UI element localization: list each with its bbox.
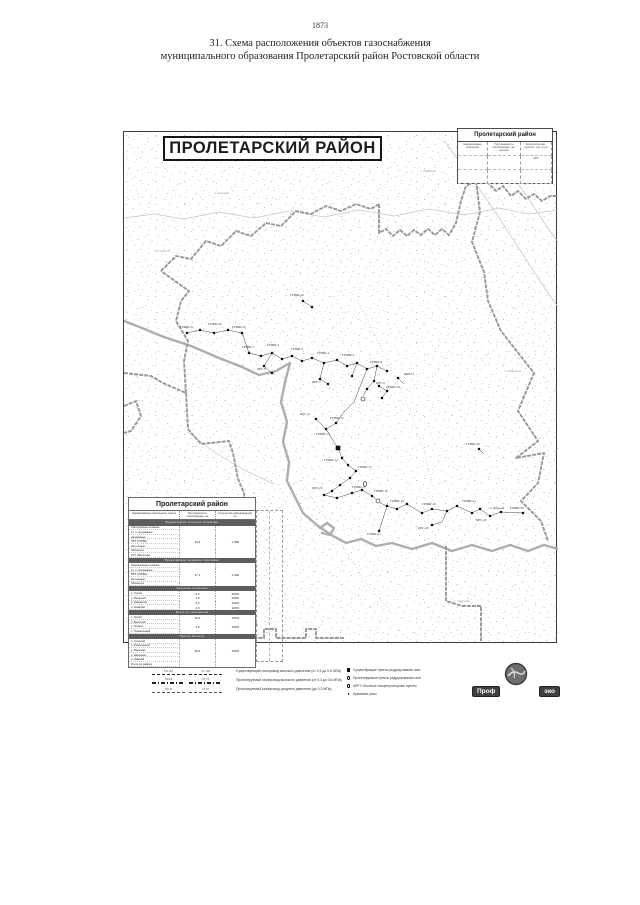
facility-label: ГРПШ-10 bbox=[385, 385, 400, 389]
logo-text-right: эко bbox=[539, 686, 560, 697]
gas-facility-marker bbox=[366, 388, 368, 390]
gas-facility-marker bbox=[361, 397, 365, 401]
document-title-line1: 31. Схема расположения объектов газоснаб… bbox=[0, 37, 640, 50]
gas-facility-marker bbox=[323, 494, 325, 496]
pipeline-legend-text: Проектируемый газопровод высокого давлен… bbox=[236, 678, 342, 682]
pipeline-line-sample: СТ 57 bbox=[189, 688, 222, 693]
gas-facility-marker bbox=[373, 380, 375, 382]
info-box-cell: Наименование поселения bbox=[458, 142, 488, 156]
settlement-label: х. Нижний bbox=[454, 599, 470, 603]
gas-facility-marker bbox=[311, 357, 313, 359]
info-box-cell: - bbox=[521, 170, 552, 184]
settlement-table-header: Наименование населенного пунктаПротяженн… bbox=[129, 511, 255, 520]
pipeline-line-sample: ПЭ 110 bbox=[152, 670, 185, 675]
gas-facility-marker bbox=[479, 508, 481, 510]
gas-facility-marker bbox=[386, 505, 388, 507]
table-row: Абоненты bbox=[129, 582, 255, 587]
logo-text-left: Проф bbox=[472, 686, 500, 697]
facility-label: ГРПШ-14 bbox=[323, 458, 338, 462]
gas-facility-marker bbox=[396, 508, 398, 510]
facility-label: ПРГ-7 bbox=[311, 380, 321, 384]
facility-label: ШРП-2 bbox=[403, 372, 415, 376]
pipe-diameter-tag: ПЭ 110 bbox=[152, 670, 185, 673]
gas-facility-marker bbox=[361, 489, 363, 491]
district-info-box: Пролетарский район Наименование поселени… bbox=[457, 128, 553, 184]
gas-facility-marker bbox=[456, 505, 458, 507]
facility-label: ГРПШ-12 bbox=[329, 416, 344, 420]
table-row: Итого по району bbox=[129, 662, 255, 667]
facility-label: ГРПШ-29 bbox=[465, 442, 480, 446]
page-number: 1873 bbox=[0, 21, 640, 30]
gas-facility-marker bbox=[376, 499, 380, 503]
info-box-cell: 20% bbox=[521, 156, 552, 170]
row-value bbox=[180, 553, 215, 558]
pipe-diameter-tag: СТ 108 bbox=[189, 670, 222, 673]
facility-label: ГРПШ-19 bbox=[389, 499, 404, 503]
pipeline-line-style bbox=[189, 674, 222, 675]
row-label: Итого по району bbox=[129, 662, 180, 667]
settlement-label: х. Степной bbox=[154, 249, 170, 253]
settlement-table-body: Будённовское сельское поселениеГазопрово… bbox=[129, 520, 255, 666]
gas-facility-marker bbox=[406, 503, 408, 505]
gas-facility-marker bbox=[311, 306, 313, 308]
facility-label: ПРГ-9 bbox=[375, 381, 385, 385]
gas-facility-marker bbox=[446, 510, 448, 512]
info-box-cell bbox=[488, 156, 521, 170]
gas-facility-marker bbox=[378, 385, 380, 387]
row-label: х. Привольный bbox=[129, 629, 180, 634]
info-box-cell bbox=[458, 156, 488, 170]
pipe-diameter-tag: ПЭ 32 bbox=[152, 688, 185, 691]
row-value bbox=[216, 553, 255, 558]
symbol-legend-row: ШРП / блочные газорегуляторные пункты bbox=[344, 682, 464, 690]
gas-facility-marker bbox=[248, 352, 250, 354]
dt-symbol-icon bbox=[344, 693, 353, 695]
symbol-legend-text: Крановые узлы bbox=[353, 692, 377, 696]
settlement-table-col-header: Протяженность газопроводов, км bbox=[180, 511, 215, 519]
logo-emblem-icon bbox=[504, 662, 528, 686]
info-box-title: Пролетарский район bbox=[458, 129, 552, 142]
row-value bbox=[180, 629, 215, 634]
table-row: х. Ковалёв4,6100% bbox=[129, 605, 255, 610]
gas-facility-marker bbox=[478, 448, 480, 450]
gas-facility-marker bbox=[371, 495, 373, 497]
symbol-legend-row: Крановые узлы bbox=[344, 690, 464, 698]
gas-facility-marker bbox=[522, 512, 524, 514]
gas-facility-marker bbox=[213, 332, 215, 334]
facility-label: ГРПШ-8 bbox=[369, 360, 382, 364]
row-value: 100% bbox=[216, 605, 255, 610]
pipeline-line-sample: ПЭ 32 bbox=[152, 688, 185, 693]
settlement-label: п. Ковалёв bbox=[214, 191, 230, 195]
gas-facility-marker bbox=[271, 352, 273, 354]
pipeline-line-sample: СТ 108 bbox=[189, 670, 222, 675]
facility-label: ГРПШ-17 bbox=[351, 485, 366, 489]
gas-facility-marker bbox=[351, 492, 353, 494]
info-box-cell: Количество нас. пунктов, тыс. штук bbox=[521, 142, 552, 156]
gas-facility-marker bbox=[336, 359, 338, 361]
info-box-cell bbox=[458, 170, 488, 184]
pipeline-legend-text: Проектируемый газопровод среднего давлен… bbox=[236, 687, 332, 691]
facility-label: ГРПШ-21 bbox=[179, 325, 194, 329]
facility-label: х. Дальний bbox=[489, 505, 505, 510]
facility-label: ГРПШ-2 bbox=[266, 343, 279, 347]
settlement-label: х. Камышев bbox=[504, 369, 522, 373]
company-logo: Проф эко bbox=[472, 662, 560, 704]
facility-label: ГРПШ-22 bbox=[207, 322, 222, 326]
settlement-table-col-header: Наименование населенного пункта bbox=[129, 511, 180, 519]
row-value bbox=[180, 582, 215, 587]
info-box-cell bbox=[488, 170, 521, 184]
gas-facility-marker bbox=[341, 457, 343, 459]
gas-facility-marker bbox=[431, 524, 433, 526]
facility-label: ГРПШ-3 bbox=[290, 347, 303, 351]
pipeline-line-style bbox=[152, 682, 185, 684]
gas-facility-marker bbox=[347, 464, 349, 466]
document-title-line2: муниципального образования Пролетарский … bbox=[0, 50, 640, 63]
gas-facility-marker bbox=[327, 383, 329, 385]
gas-facility-marker bbox=[302, 300, 304, 302]
symbol-legend-text: ШРП / блочные газорегуляторные пункты bbox=[353, 684, 417, 688]
gas-facility-marker bbox=[349, 477, 351, 479]
gas-facility-marker bbox=[241, 332, 243, 334]
gas-facility-marker bbox=[397, 377, 399, 379]
row-label: х. Ковалёв bbox=[129, 605, 180, 610]
settlement-table-title: Пролетарский район bbox=[129, 498, 255, 511]
gas-facility-marker bbox=[323, 362, 325, 364]
gas-facility-marker bbox=[471, 512, 473, 514]
settlement-label: х. Верхний bbox=[420, 169, 436, 173]
gas-facility-marker bbox=[331, 490, 333, 492]
symbol-legend-text: Существующие пункты редуцирования газа bbox=[353, 668, 420, 672]
gas-facility-marker bbox=[186, 332, 188, 334]
facility-label: ГРПШ-15 bbox=[357, 465, 372, 469]
row-value bbox=[216, 629, 255, 634]
info-box-cell: Протяженность газопроводов, пог. метров bbox=[488, 142, 521, 156]
pipeline-line-style bbox=[189, 682, 222, 684]
gas-facility-marker bbox=[336, 497, 338, 499]
symbol-legend-row: Проектируемые пункты редуцирования газа bbox=[344, 674, 464, 682]
info-box-grid: Наименование поселенияПротяженность газо… bbox=[458, 142, 552, 184]
gas-facility-marker bbox=[355, 470, 357, 472]
facility-label: ГРПШ-4 bbox=[316, 351, 329, 355]
gas-facility-marker bbox=[315, 418, 317, 420]
gas-facility-marker bbox=[376, 365, 378, 367]
map-title: ПРОЛЕТАРСКИЙ РАЙОН bbox=[163, 136, 382, 161]
pipeline-line-sample: СТ 76 bbox=[189, 678, 222, 684]
facility-label: ГРПШ-20 bbox=[421, 502, 436, 506]
facility-label: ПРГ-26 bbox=[417, 526, 429, 530]
pipe-diameter-tag: ПЭ 63 bbox=[152, 678, 185, 681]
table-row: х. Привольный bbox=[129, 629, 255, 634]
pipeline-legend-text: Существующий газопровод высокого давлени… bbox=[236, 669, 341, 673]
facility-label: ПРГ-11 bbox=[299, 412, 310, 416]
gas-facility-marker bbox=[356, 362, 358, 364]
gas-facility-marker bbox=[260, 355, 262, 357]
facility-label: ГРПШ-1 bbox=[241, 345, 254, 349]
gas-facility-marker bbox=[500, 511, 502, 513]
pipeline-line-style bbox=[152, 692, 185, 693]
row-label: СУГ (баллоны) bbox=[129, 553, 180, 558]
document-title: 31. Схема расположения объектов газоснаб… bbox=[0, 37, 640, 63]
gas-facility-marker bbox=[291, 355, 293, 357]
gas-facility-marker bbox=[431, 508, 433, 510]
row-value bbox=[216, 662, 255, 667]
gas-facility-marker bbox=[301, 360, 303, 362]
symbol-legend-text: Проектируемые пункты редуцирования газа bbox=[353, 676, 421, 680]
gas-facility-marker bbox=[271, 372, 273, 374]
facility-label: ГРПШ-13 bbox=[315, 432, 330, 436]
gas-facility-marker bbox=[227, 329, 229, 331]
facility-label: ПРГ-25 bbox=[475, 518, 487, 522]
document-page: 1873 31. Схема расположения объектов газ… bbox=[0, 0, 640, 905]
pipeline-line-style bbox=[189, 692, 222, 693]
gas-facility-marker bbox=[381, 397, 383, 399]
gas-facility-marker bbox=[336, 446, 341, 451]
pipe-diameter-tag: СТ 76 bbox=[189, 678, 222, 681]
settlement-table-col-header: Количество домовладений, шт. bbox=[216, 511, 255, 519]
gas-facility-marker bbox=[386, 390, 388, 392]
settlement-table-extension bbox=[256, 510, 283, 662]
gas-facility-marker bbox=[351, 375, 353, 377]
gas-facility-marker bbox=[281, 358, 283, 360]
gas-facility-marker bbox=[366, 368, 368, 370]
facility-label: ГРПШ-23 bbox=[231, 325, 246, 329]
ci-symbol-icon bbox=[344, 676, 353, 680]
cy-symbol-icon bbox=[344, 684, 353, 689]
gas-facility-marker bbox=[421, 512, 423, 514]
gas-facility-marker bbox=[489, 515, 491, 517]
row-value: 4,6 bbox=[180, 605, 215, 610]
symbol-legend: Существующие пункты редуцирования газаПр… bbox=[344, 666, 464, 698]
row-label: Абоненты bbox=[129, 582, 180, 587]
gas-facility-marker bbox=[346, 365, 348, 367]
sq-symbol-icon bbox=[344, 668, 353, 672]
facility-label: ПРГ-16 bbox=[311, 486, 323, 490]
pipe-diameter-tag: СТ 57 bbox=[189, 688, 222, 691]
settlement-table: Пролетарский район Наименование населенн… bbox=[128, 497, 256, 668]
facility-label: ГРПШ-28 bbox=[289, 293, 304, 297]
symbol-legend-row: Существующие пункты редуцирования газа bbox=[344, 666, 464, 674]
pipeline-line-style bbox=[152, 674, 185, 675]
facility-label: ГРПШ-24 bbox=[461, 499, 476, 503]
gas-facility-marker bbox=[335, 422, 337, 424]
gas-facility-marker bbox=[339, 484, 341, 486]
gas-facility-marker bbox=[325, 428, 327, 430]
row-value bbox=[180, 662, 215, 667]
facility-label: ПРГ-6 bbox=[256, 367, 266, 371]
gas-facility-marker bbox=[199, 329, 201, 331]
facility-label: ГРПШ-18 bbox=[373, 489, 388, 493]
pipeline-line-sample: ПЭ 63 bbox=[152, 678, 185, 684]
facility-label: ГРПШ-5 bbox=[341, 353, 354, 357]
row-value bbox=[216, 582, 255, 587]
gas-facility-marker bbox=[386, 370, 388, 372]
facility-label: ГРПШ-30 bbox=[509, 506, 524, 510]
table-row: СУГ (баллоны) bbox=[129, 553, 255, 558]
facility-label: ГРПШ-27 bbox=[366, 532, 381, 536]
